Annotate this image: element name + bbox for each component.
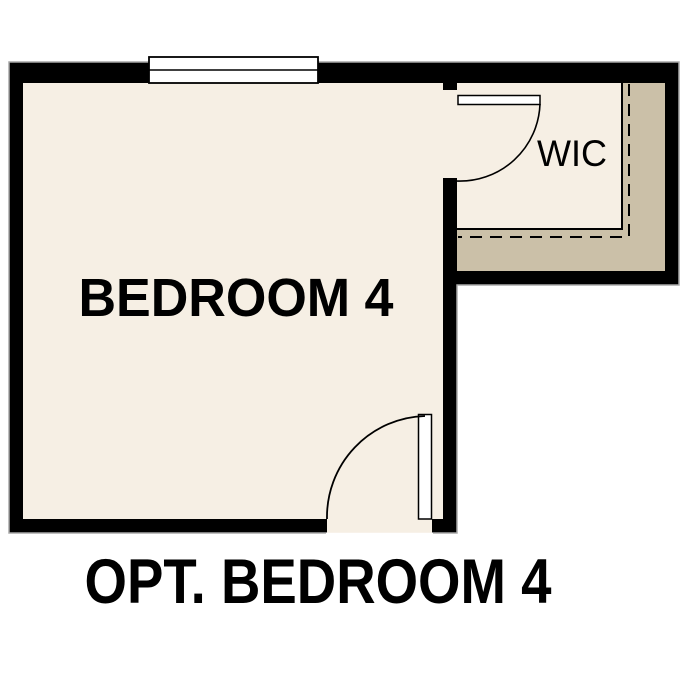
bedroom-door-leaf [419,415,432,520]
wic-label: WIC [537,133,607,174]
floor-plan-drawing: BEDROOM 4 WIC OPT. BEDROOM 4 [0,0,687,687]
floor-plan-page: BEDROOM 4 WIC OPT. BEDROOM 4 [0,0,687,687]
bedroom-doorway-threshold [326,533,433,537]
closet-shelf-band-bottom [457,229,665,271]
wic-doorway-opening [443,90,457,178]
wic-door-leaf [458,96,540,105]
bedroom-doorway-opening [327,519,432,533]
plan-caption: OPT. BEDROOM 4 [85,547,552,617]
bedroom-label: BEDROOM 4 [79,268,394,328]
window [149,57,318,83]
